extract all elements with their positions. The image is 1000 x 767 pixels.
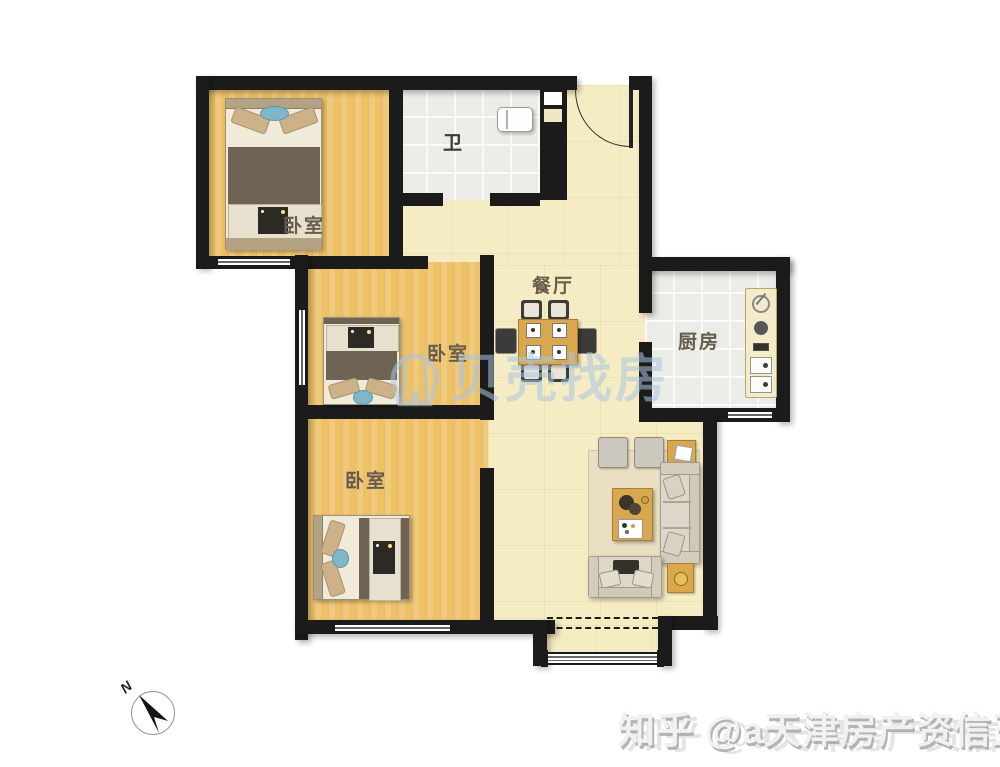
kitchen-counter xyxy=(745,288,777,398)
wall-kitchen-right xyxy=(776,257,790,422)
bed2-tv-icon xyxy=(348,327,374,348)
loveseat-pillow-right xyxy=(632,569,655,589)
bed-mid-bedroom xyxy=(323,317,400,405)
bed-bottom-bedroom xyxy=(313,515,410,600)
sofa-backrest xyxy=(689,463,699,563)
kitchen-burner-icon xyxy=(754,321,768,335)
dining-chair-right xyxy=(575,328,597,354)
bed2-blue-stool xyxy=(353,390,373,405)
bed3-blue-cushion xyxy=(332,549,349,568)
balcony-dashed-boundary xyxy=(547,617,658,629)
dining-chair-bottom-left xyxy=(521,362,542,382)
sofa-armrest-top xyxy=(661,463,699,475)
wall-living-right xyxy=(703,414,717,630)
book xyxy=(674,445,693,463)
window-bedroom-mid xyxy=(297,310,307,385)
sofa-cushion-line-1 xyxy=(663,501,691,503)
loveseat xyxy=(588,556,662,598)
label-bedroom-mid: 卧室 xyxy=(427,339,469,366)
bed2-blanket xyxy=(326,351,397,380)
label-dining: 餐厅 xyxy=(532,271,574,298)
bed1-blue-cushion xyxy=(260,106,289,121)
compass-north-arrow-icon xyxy=(128,688,178,738)
wall-right-upper xyxy=(639,76,652,313)
window-balcony xyxy=(547,652,658,665)
dining-set xyxy=(495,300,599,386)
shaft-opening-1 xyxy=(544,92,562,105)
wall-bedrooms-right-lower xyxy=(480,468,494,634)
tray xyxy=(618,519,643,539)
balcony-window-cap-left xyxy=(541,650,548,667)
wall-bedrooms-right-upper xyxy=(480,255,494,420)
dining-table xyxy=(518,319,578,365)
wall-bathroom-bottom-left xyxy=(403,193,443,206)
plate-1 xyxy=(526,323,541,338)
basin-dot-1 xyxy=(763,363,768,368)
toilet-tank-line xyxy=(506,110,508,129)
zhihu-watermark-text: 知乎 @a天津房产资信王 xyxy=(618,700,1000,754)
toilet xyxy=(497,107,533,132)
label-bedroom-top: 卧室 xyxy=(283,211,325,238)
bed3-tv-icon xyxy=(373,541,395,574)
label-bedroom-bottom: 卧室 xyxy=(345,466,387,493)
wall-left-bedroom-top xyxy=(196,76,209,268)
wall-top xyxy=(196,76,577,90)
dining-chair-bottom-right xyxy=(548,362,569,382)
shaft-opening-2 xyxy=(544,109,562,122)
decor-dot xyxy=(641,496,649,504)
bed1-blanket xyxy=(228,147,320,204)
label-kitchen: 厨房 xyxy=(678,327,720,354)
ottoman-1 xyxy=(598,437,628,468)
kitchen-sink-basin-2 xyxy=(750,376,772,393)
bathroom-floor xyxy=(398,88,540,200)
kitchen-sink-basin-1 xyxy=(750,357,772,374)
wall-bathroom-bottom-right xyxy=(490,193,540,206)
kitchen-control-panel xyxy=(753,343,769,351)
sofa-cushion-line-2 xyxy=(663,527,691,529)
bed3-headboard xyxy=(314,516,323,599)
pipe-shaft xyxy=(540,88,567,200)
sofa-pillow-top xyxy=(662,474,686,500)
wall-bedroom-top-right xyxy=(389,88,403,268)
side-table-bottom xyxy=(667,563,694,593)
plant-icon-2 xyxy=(629,503,641,515)
plate-2 xyxy=(552,323,567,338)
floorplan-canvas: 卧室 卫 餐厅 卧室 厨房 卧室 贝壳找房 N 知乎 @a天津房产资信王 xyxy=(0,0,1000,767)
label-bathroom: 卫 xyxy=(443,128,464,155)
bed2-foot-bar xyxy=(324,318,399,324)
dining-chair-top-left xyxy=(521,300,542,320)
dining-chair-left xyxy=(495,328,517,354)
balcony-window-cap-right xyxy=(657,650,664,667)
bed1-foot-bar xyxy=(226,238,321,250)
plate-4 xyxy=(552,345,567,360)
loveseat-armrest-left xyxy=(589,557,599,597)
window-bedroom-bottom xyxy=(335,623,450,633)
basin-dot-2 xyxy=(763,382,768,387)
wall-kitchen-top xyxy=(645,257,790,271)
wall-bedroom-divider xyxy=(295,405,494,419)
plate-3 xyxy=(526,345,541,360)
sofa-main xyxy=(660,462,700,564)
window-kitchen xyxy=(728,410,772,420)
window-bedroom-top xyxy=(218,257,290,267)
dining-chair-top-right xyxy=(548,300,569,320)
loveseat-pillow-left xyxy=(599,569,622,589)
coffee-table xyxy=(612,488,653,541)
lamp-icon xyxy=(674,572,688,586)
